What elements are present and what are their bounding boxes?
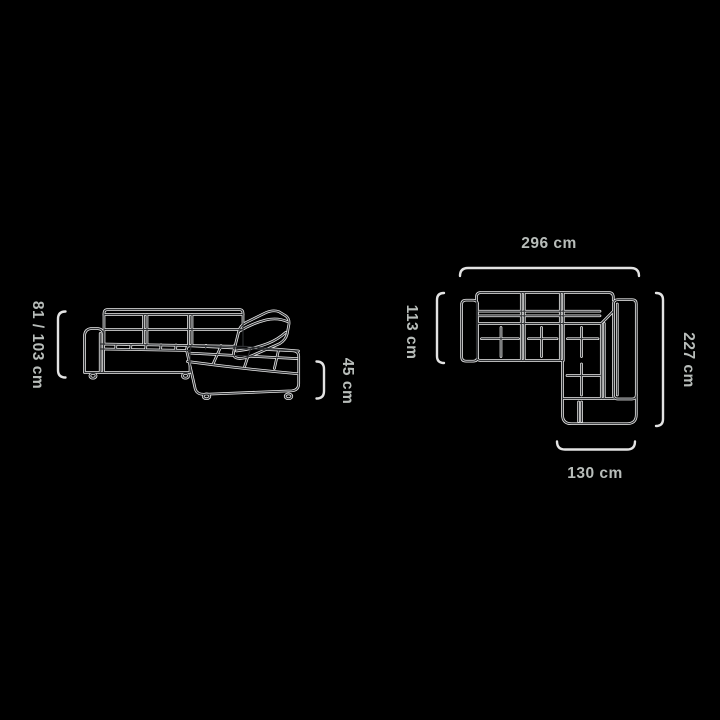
diagram-line-art [0,0,720,720]
side-height-dimension-label: 81 / 103 cm [28,301,46,389]
sofa-top-view-drawing [462,293,637,424]
side-seat-height-dimension-label: 45 cm [338,358,356,404]
sofa-dimensions-diagram: 81 / 103 cm 45 cm 296 cm 113 cm 227 cm 1… [0,0,720,720]
top-depth-dimension-line [437,293,444,363]
side-seat-height-bracket [317,362,325,399]
side-height-bracket [58,312,66,378]
dimension-lines [58,268,663,450]
sofa-drawings [85,293,637,424]
top-length-dimension-label: 227 cm [679,332,697,388]
top-length-dimension-line [656,293,663,426]
top-chaise-width-dimension-line [557,442,635,450]
top-depth-dimension-label: 113 cm [402,305,420,360]
top-width-dimension-label: 296 cm [521,235,577,253]
top-width-dimension-line [460,268,639,276]
top-chaise-width-dimension-label: 130 cm [567,465,623,483]
